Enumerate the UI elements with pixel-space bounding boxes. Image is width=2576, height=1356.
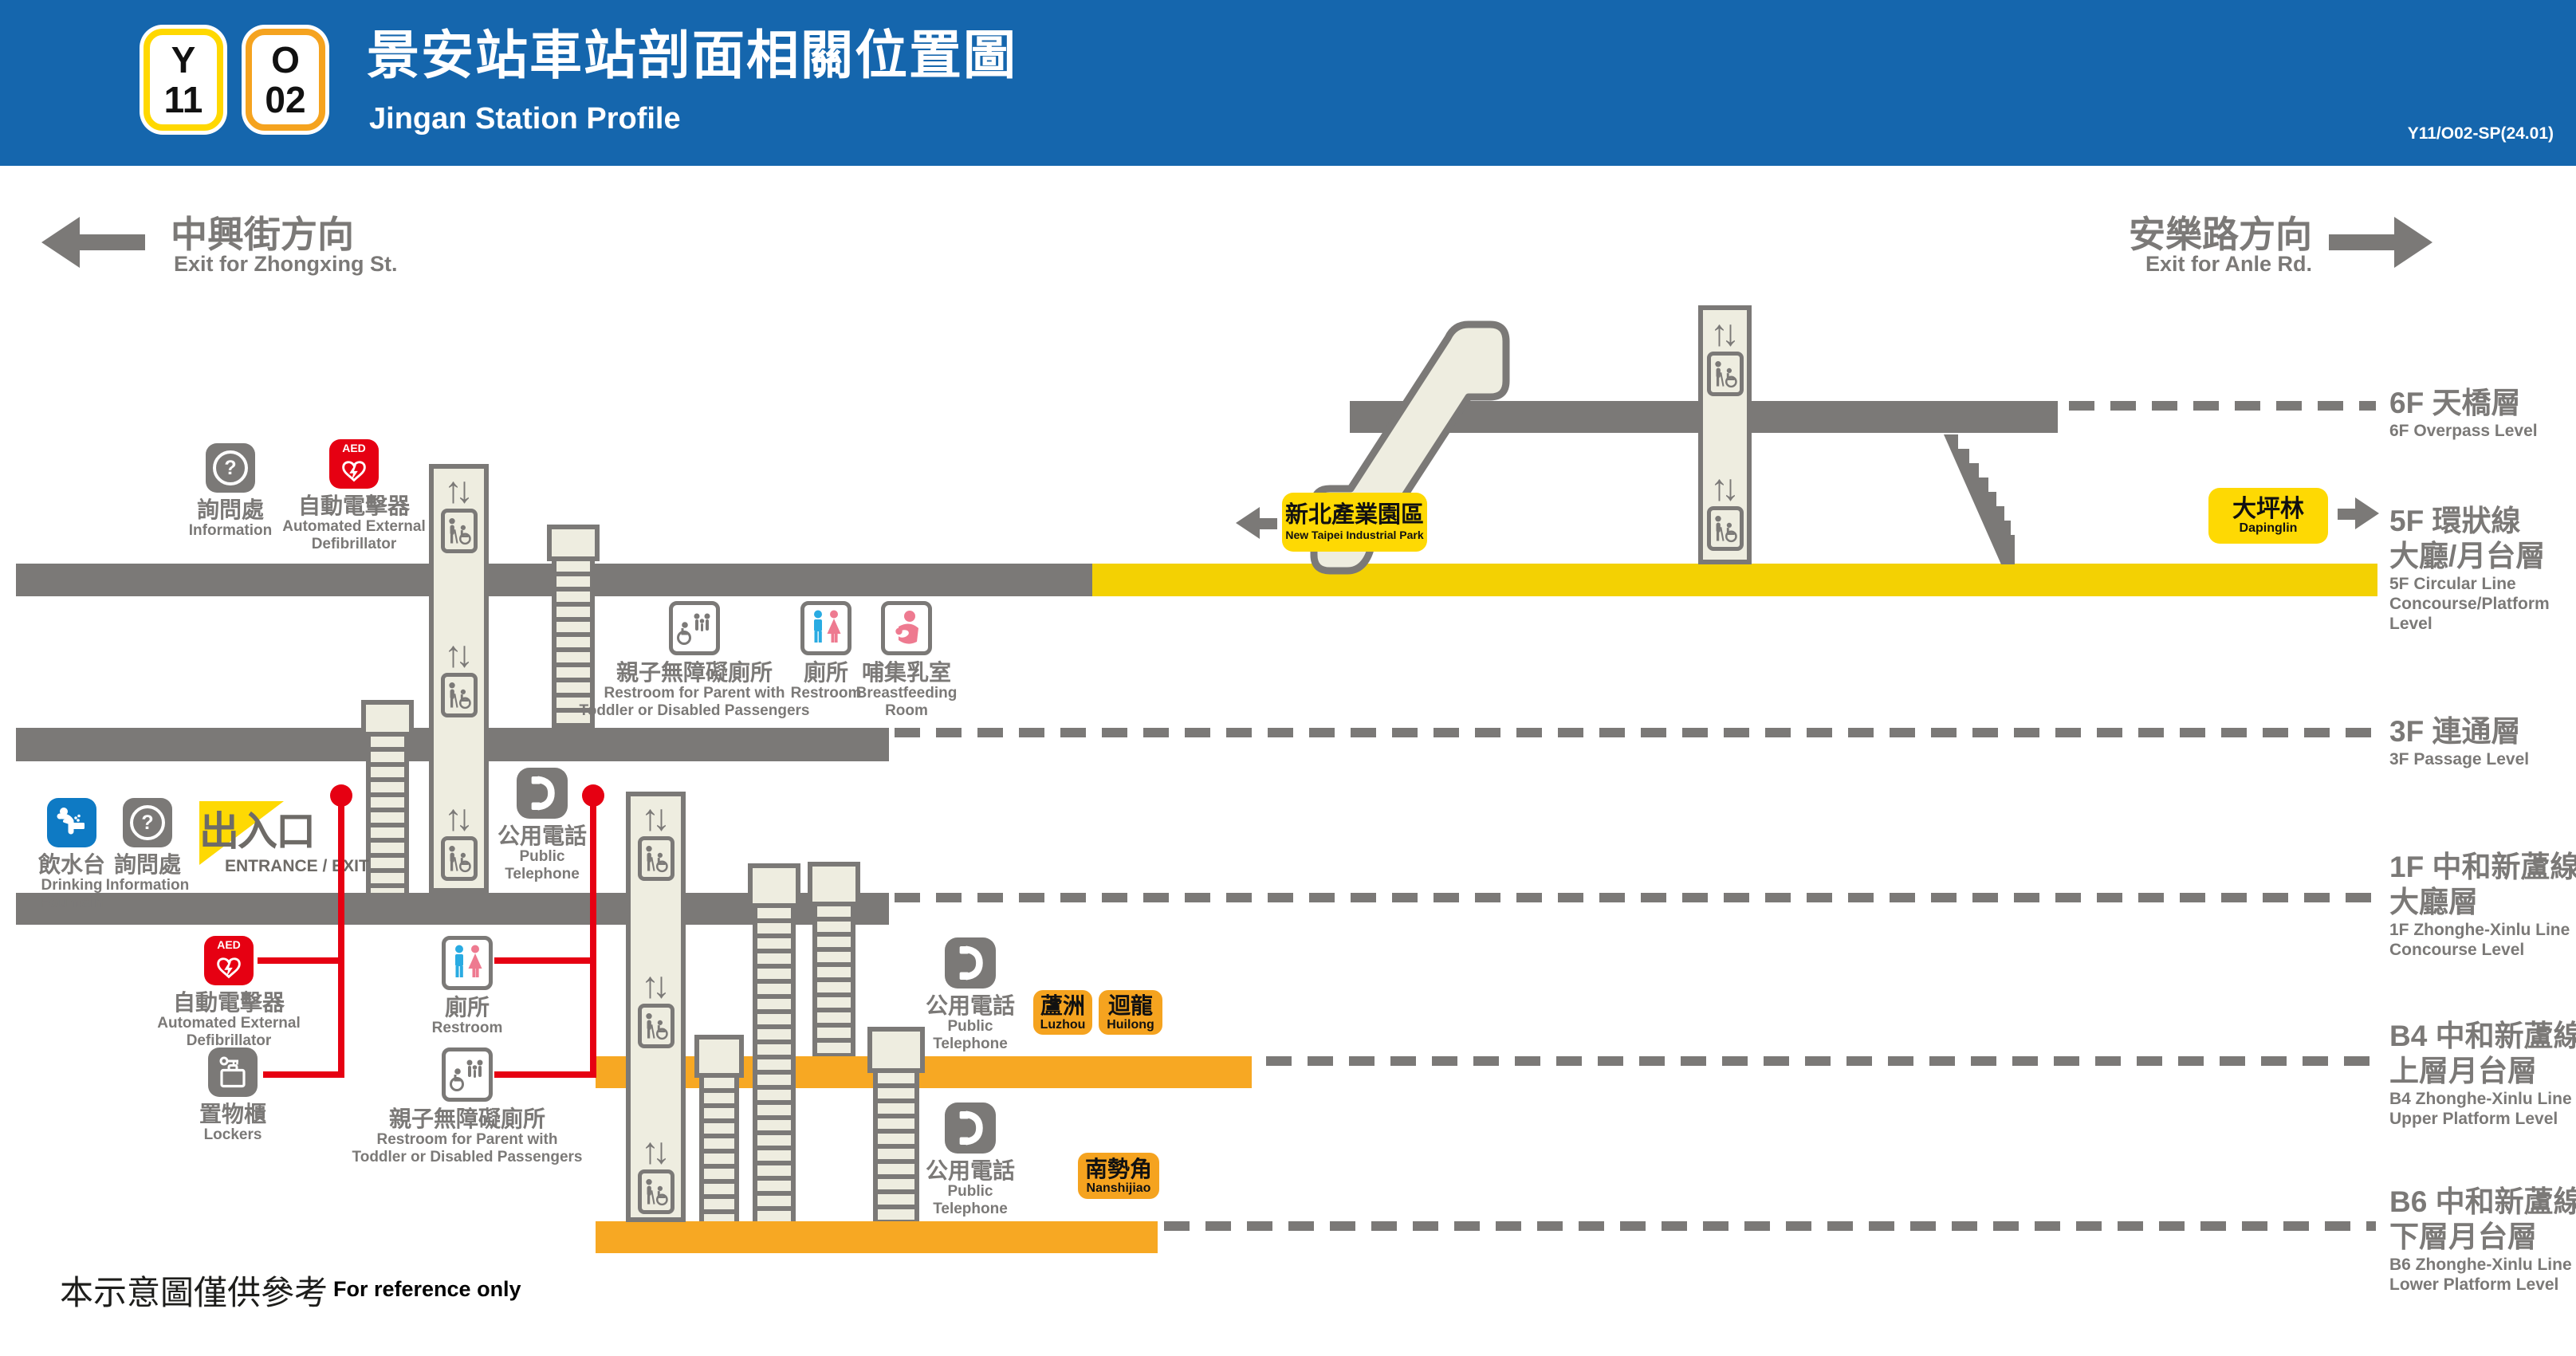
accessible-family-restroom-icon <box>442 1047 493 1102</box>
breastfeeding-icon <box>881 601 932 655</box>
footer-note-zh: 本示意圖僅供參考 <box>60 1266 328 1315</box>
aed-icon: AED <box>329 439 379 489</box>
page-title-en: Jingan Station Profile <box>369 102 681 136</box>
facility-breastfeeding-5f: 哺集乳室 Breastfeeding Room <box>827 601 986 720</box>
elevator-updown-icon: ↑↓ <box>1717 470 1732 505</box>
aed-icon: AED <box>204 936 254 985</box>
level-label-b4: B4 中和新蘆線 上層月台層 B4 Zhonghe-Xinlu Line Upp… <box>2389 1019 2576 1129</box>
facility-aed-1f: AED 自動電擊器 Automated External Defibrillat… <box>133 936 324 1050</box>
accessible-family-restroom-icon <box>669 601 720 655</box>
callout-line-right-vertical <box>590 796 596 1078</box>
direction-right-zh: 安樂路方向 <box>2129 206 2312 258</box>
staircase-6f-5f <box>1931 434 2015 566</box>
information-icon: ? <box>206 443 255 493</box>
callout-line-left-vertical <box>338 796 344 1078</box>
level-label-6f: 6F 天橋層 6F Overpass Level <box>2389 386 2538 441</box>
footer-note-en: For reference only <box>333 1277 521 1302</box>
public-telephone-icon <box>945 1102 996 1154</box>
direction-left-en: Exit for Zhongxing St. <box>174 252 397 277</box>
facility-parent-restroom-1f: 親子無障礙廁所 Restroom for Parent with Toddler… <box>340 1047 595 1166</box>
stairs-b4-b6-left <box>694 1035 744 1221</box>
direction-right-en: Exit for Anle Rd. <box>2145 252 2312 277</box>
left-direction-arrow-icon <box>41 217 149 268</box>
callout-line-aed <box>258 957 338 964</box>
level-label-b6: B6 中和新蘆線 下層月台層 B6 Zhonghe-Xinlu Line Low… <box>2389 1185 2576 1295</box>
line-badge-circular-y11: Y 11 <box>144 29 223 131</box>
public-telephone-icon <box>517 768 568 819</box>
dash-line-3f <box>895 728 2376 737</box>
station-badge-nanshijiao: 南勢角 Nanshijiao <box>1078 1153 1159 1199</box>
elevator-updown-icon: ↑↓ <box>648 1133 663 1168</box>
level-label-1f: 1F 中和新蘆線 大廳層 1F Zhonghe-Xinlu Line Conco… <box>2389 850 2576 960</box>
elevator-passenger-icon <box>441 673 478 717</box>
public-telephone-icon <box>945 937 996 989</box>
line-number: 11 <box>164 80 203 120</box>
callout-line-restroom <box>494 957 590 964</box>
line-number: 02 <box>265 80 305 120</box>
header-bar: Y 11 O 02 景安站車站剖面相關位置圖 Jingan Station Pr… <box>0 0 2576 166</box>
callout-line-lockers <box>263 1071 344 1078</box>
stairs-1f-b4 <box>808 862 860 1056</box>
right-direction-arrow-icon <box>2325 217 2432 268</box>
station-badge-new-taipei-industrial-park: 新北產業園區 New Taipei Industrial Park <box>1282 493 1427 552</box>
station-profile-diagram: Y 11 O 02 景安站車站剖面相關位置圖 Jingan Station Pr… <box>0 0 2576 1356</box>
lockers-icon <box>208 1047 258 1097</box>
callout-line-parent-restroom <box>494 1071 590 1078</box>
facility-public-telephone-b6: 公用電話 Public Telephone <box>891 1102 1050 1218</box>
line-letter: Y <box>171 40 196 80</box>
diagram-code: Y11/O02-SP(24.01) <box>2408 124 2554 143</box>
elevator-updown-icon: ↑↓ <box>451 472 466 507</box>
line-letter: O <box>271 40 300 80</box>
elevator-passenger-icon <box>638 1004 674 1048</box>
elevator-passenger-icon <box>1707 506 1744 551</box>
entrance-exit-sign: 出入口 ENTRANCE / EXIT <box>198 800 333 882</box>
dash-line-6f <box>2069 401 2376 411</box>
floor-band-5f-circular-line <box>1092 564 2377 596</box>
stairs-1f-b6 <box>748 863 800 1221</box>
left-arrow-icon <box>1236 505 1279 540</box>
level-label-3f: 3F 連通層 3F Passage Level <box>2389 714 2529 769</box>
facility-restroom-1f: 廁所 Restroom <box>387 936 547 1037</box>
dash-line-b4 <box>1266 1056 2376 1066</box>
page-title-zh: 景安站車站剖面相關位置圖 <box>367 13 1017 89</box>
elevator-passenger-icon <box>638 836 674 881</box>
restroom-icon <box>442 936 493 990</box>
line-badge-zhonghe-xinlu-o02: O 02 <box>246 29 325 131</box>
elevator-passenger-icon <box>1707 352 1744 396</box>
right-arrow-icon <box>2336 496 2379 531</box>
facility-aed-5f: AED 自動電擊器 Automated External Defibrillat… <box>258 439 450 553</box>
elevator-updown-icon: ↑↓ <box>1717 315 1732 350</box>
elevator-updown-icon: ↑↓ <box>648 800 663 835</box>
facility-lockers-1f: 置物櫃 Lockers <box>153 1047 313 1144</box>
station-badge-huilong: 迴龍 Huilong <box>1099 990 1162 1035</box>
facility-public-telephone-b4: 公用電話 Public Telephone <box>891 937 1050 1053</box>
dash-line-1f <box>895 893 2376 902</box>
platform-band-b6 <box>596 1221 1158 1253</box>
dash-line-b6 <box>1164 1221 2376 1231</box>
elevator-updown-icon: ↑↓ <box>648 967 663 1002</box>
elevator-updown-icon: ↑↓ <box>451 636 466 671</box>
level-label-5f: 5F 環狀線 大廳/月台層 5F Circular Line Concourse… <box>2389 504 2550 634</box>
direction-left-zh: 中興街方向 <box>171 206 354 258</box>
elevator-passenger-icon <box>638 1169 674 1214</box>
information-icon: ? <box>123 798 172 847</box>
elevator-1f-b6: ↑↓ ↑↓ ↑↓ <box>626 792 686 1222</box>
station-badge-dapinglin: 大坪林 Dapinglin <box>2208 488 2328 544</box>
elevator-6f-5f: ↑↓ ↑↓ <box>1698 305 1752 564</box>
